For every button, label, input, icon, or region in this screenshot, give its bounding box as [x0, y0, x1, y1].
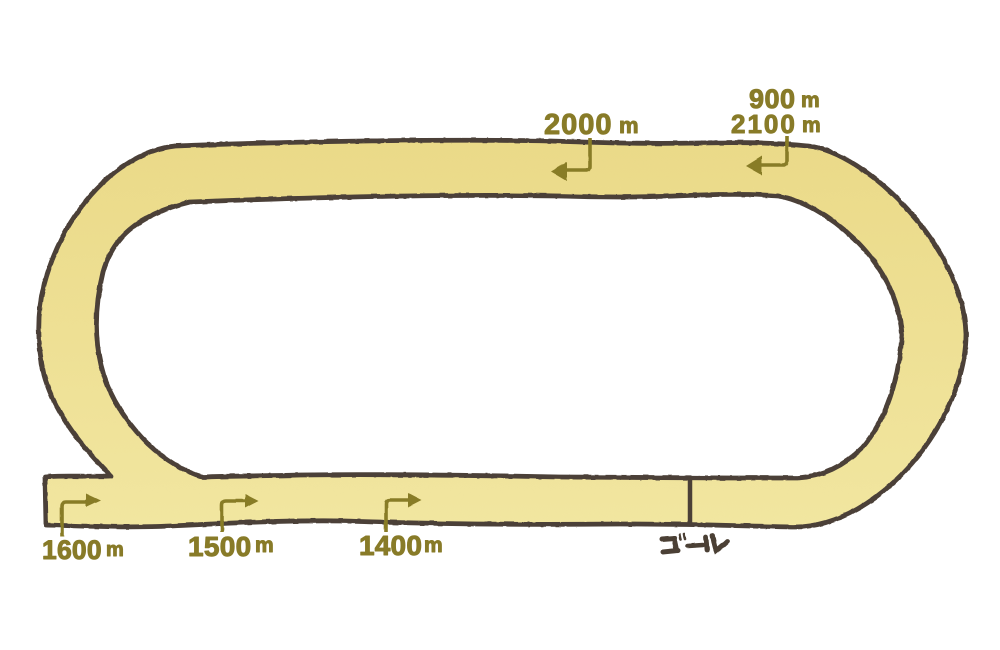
svg-text:m: m — [619, 113, 639, 138]
svg-text:1600: 1600 — [42, 535, 102, 565]
svg-text:m: m — [106, 539, 124, 561]
svg-text:1400: 1400 — [359, 530, 422, 561]
svg-text:m: m — [255, 534, 274, 557]
svg-text:2000: 2000 — [544, 109, 613, 141]
svg-text:1500: 1500 — [188, 531, 252, 562]
svg-text:m: m — [424, 534, 443, 557]
svg-text:2100: 2100 — [731, 109, 797, 139]
svg-text:m: m — [801, 89, 820, 112]
svg-text:m: m — [802, 114, 821, 137]
